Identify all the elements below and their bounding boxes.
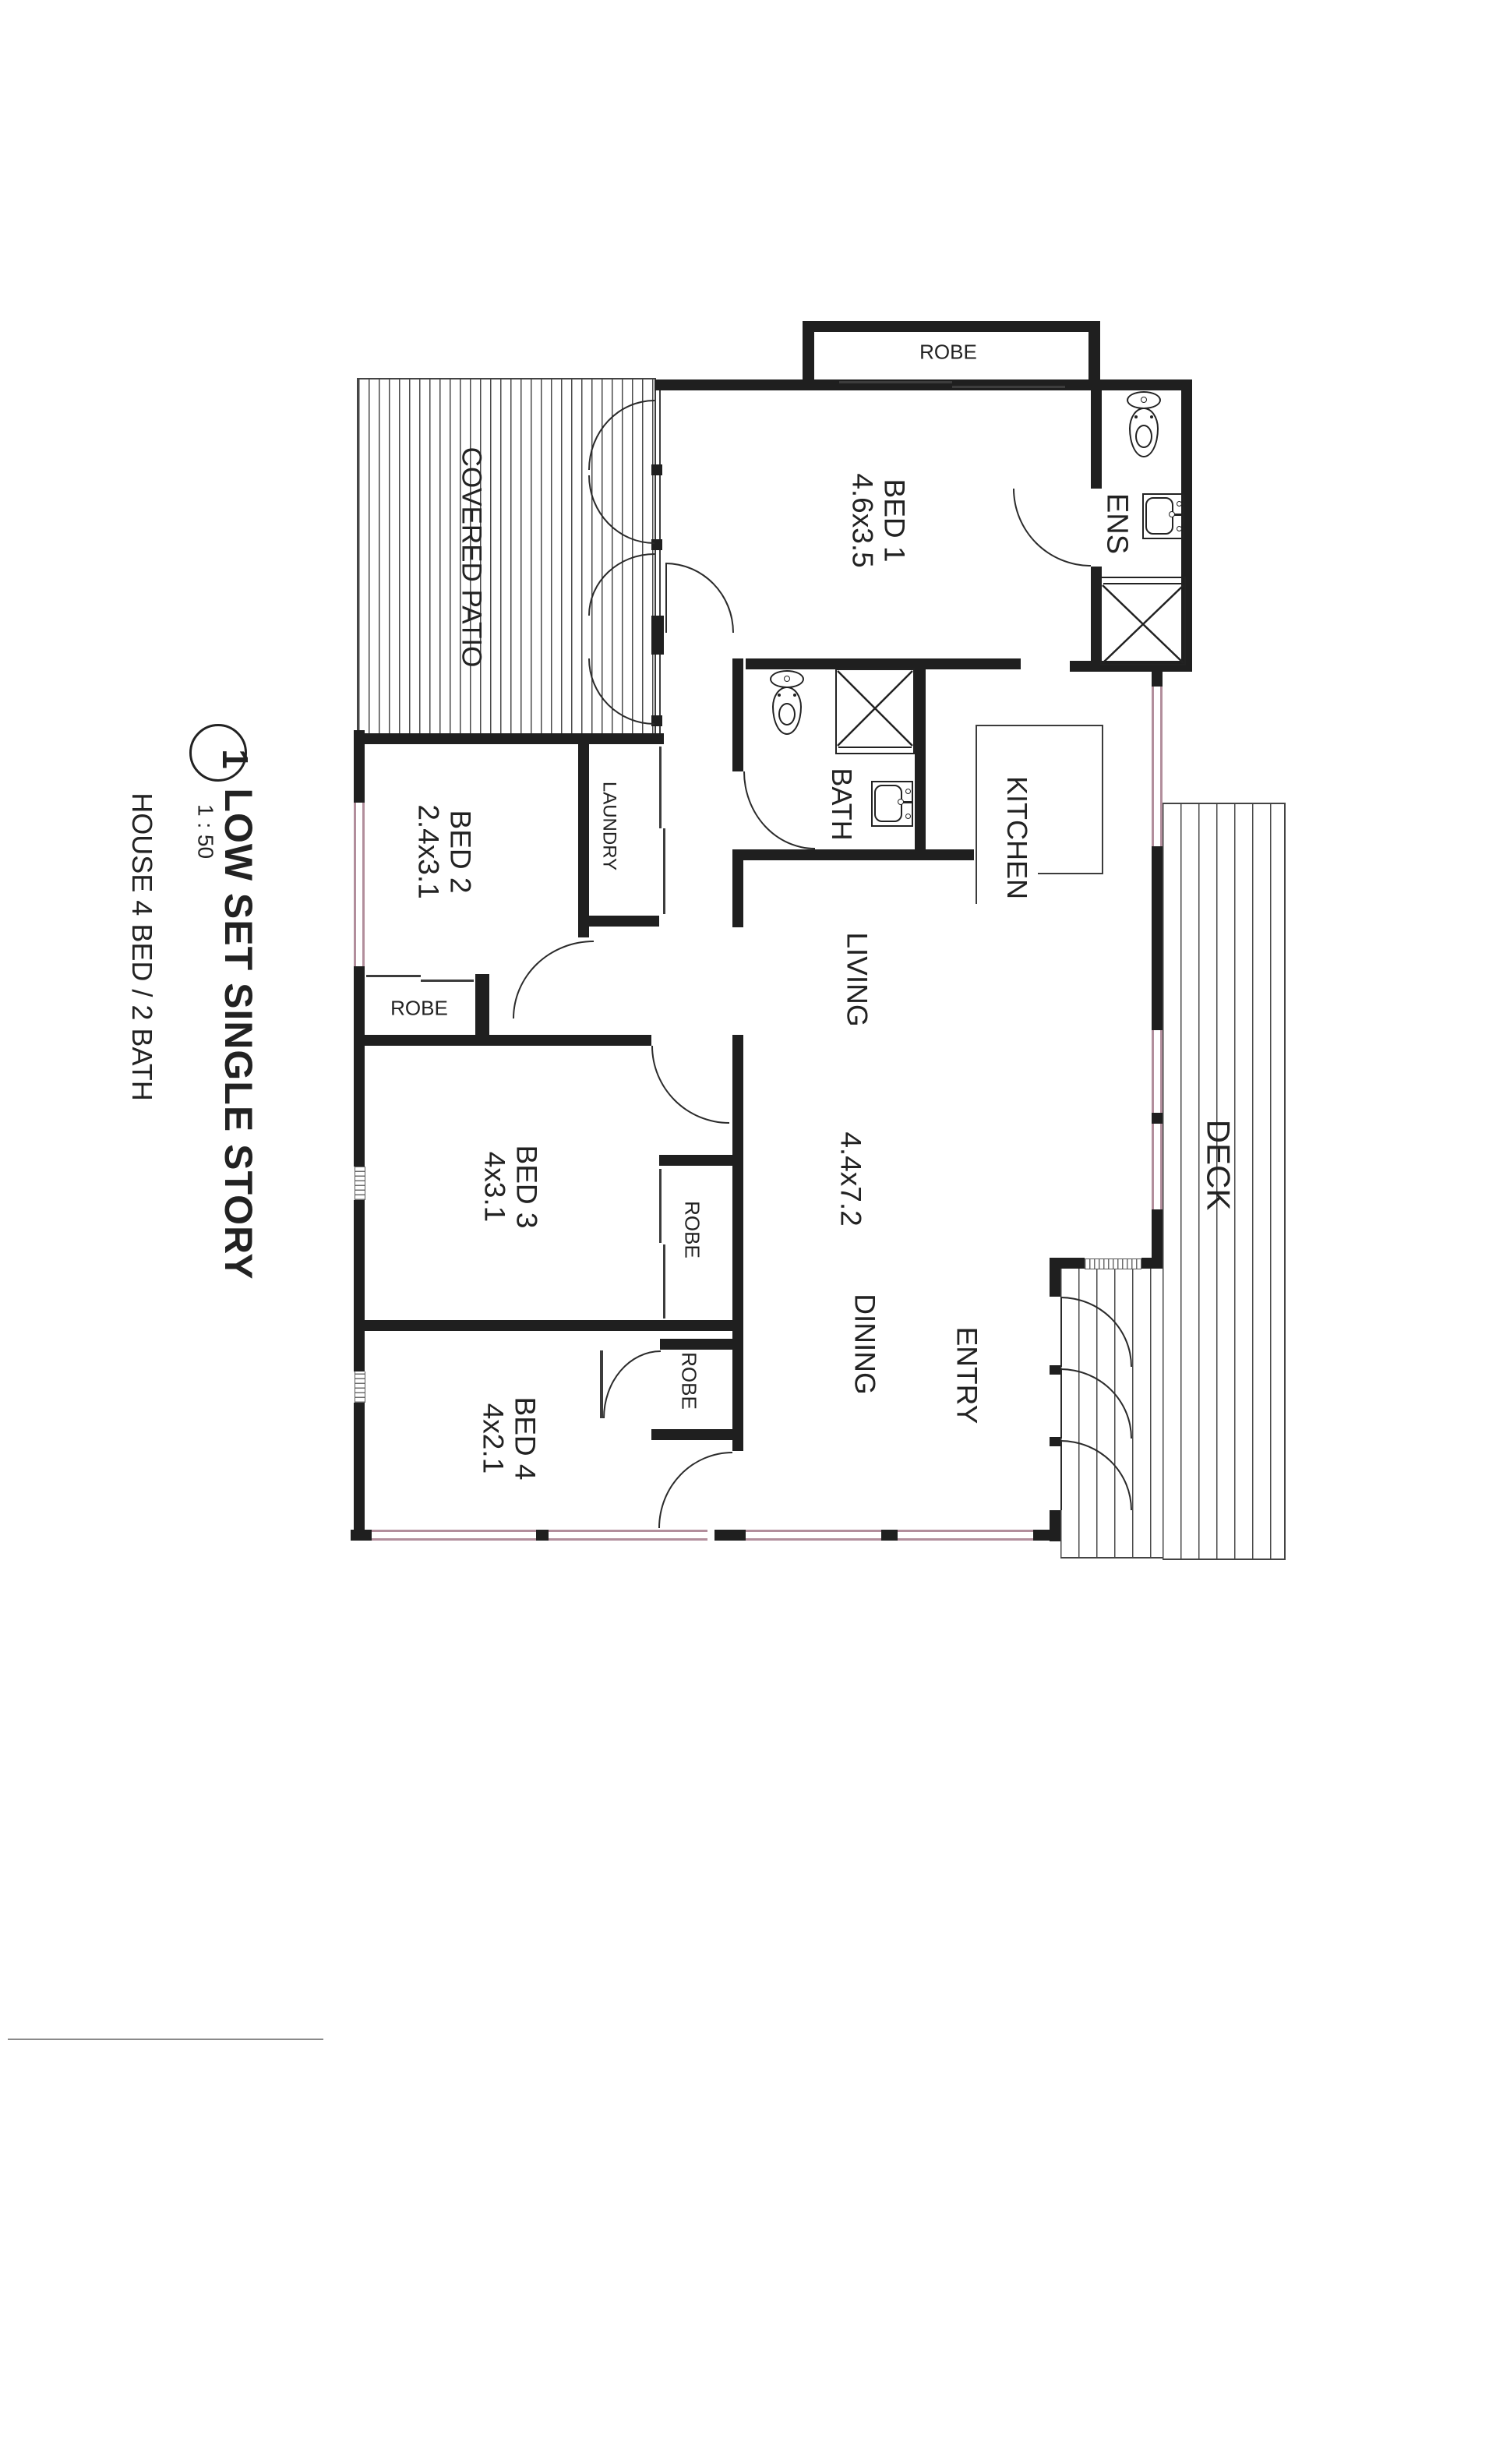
- window-living-east-mullion: [1152, 1113, 1163, 1124]
- kitchen-counter-right: [1102, 725, 1103, 874]
- wall-entry-east-a: [1050, 1258, 1060, 1297]
- wall-west-b: [354, 966, 365, 1167]
- window-bed3-west: [355, 1167, 365, 1200]
- label-deck: DECK: [1200, 1120, 1237, 1211]
- window-kitchen-east: [1152, 687, 1163, 846]
- wall-bed1-ens-upper: [1091, 379, 1102, 489]
- ens-toilet-icon: [1125, 390, 1163, 461]
- window-bottom-2: [549, 1530, 707, 1541]
- wall-bed2-east: [578, 740, 589, 937]
- bath-shower-icon: [835, 669, 915, 754]
- bath-toilet-icon: [768, 669, 806, 738]
- label-bath: BATH: [826, 768, 857, 840]
- wall-column-east: [732, 1035, 743, 1451]
- label-bed3: BED 3 4x3.1: [478, 1146, 543, 1229]
- floor-plan-page: 1 LOW SET SINGLE STORY 1 : 50 HOUSE 4 BE…: [0, 0, 1496, 2464]
- wall-robe3-top: [659, 1155, 743, 1166]
- hall-door: [665, 563, 734, 633]
- kitchen-counter-top: [976, 725, 1102, 726]
- wall-bed3-north: [354, 1035, 651, 1046]
- wall-bath-south: [732, 849, 974, 860]
- wall-bottom-mullion-1: [536, 1530, 549, 1541]
- window-bottom-3: [746, 1530, 881, 1541]
- wall-bed3-south: [354, 1320, 743, 1331]
- sheet-number-circle: 1: [189, 724, 247, 782]
- wall-bottom-corner-right: [1033, 1530, 1060, 1541]
- wall-laundry-south: [586, 916, 659, 927]
- label-entry: ENTRY: [951, 1327, 983, 1424]
- patio-wall-chunk: [651, 616, 664, 655]
- label-bed4: BED 4 4x2.1: [477, 1397, 542, 1481]
- bed4-door: [658, 1452, 732, 1528]
- label-living-dims: 4.4x7.2: [834, 1131, 866, 1226]
- robe2-slider-line-1: [366, 975, 421, 977]
- wall-bath-west-b: [732, 849, 743, 927]
- plan-subtitle: HOUSE 4 BED / 2 BATH: [126, 793, 157, 1100]
- kitchen-counter-bottom: [1038, 873, 1103, 874]
- wall-bath-east: [915, 669, 926, 849]
- label-living: LIVING: [841, 932, 873, 1026]
- bath-sink-icon: [871, 781, 915, 828]
- wall-east-b: [1152, 846, 1163, 1030]
- wall-bottom-mullion-2: [714, 1530, 746, 1541]
- wall-east-a: [1152, 672, 1163, 687]
- label-covered-patio: COVERED PATIO: [456, 447, 486, 668]
- wall-bottom-mullion-3: [881, 1530, 898, 1541]
- bed2-door: [513, 941, 594, 1018]
- ens-door: [1013, 489, 1091, 567]
- laundry-slider-line-2: [663, 828, 665, 914]
- label-robe-bed4: ROBE: [677, 1352, 700, 1410]
- label-robe-bed2: ROBE: [390, 997, 448, 1021]
- label-laundry: LAUNDRY: [598, 782, 619, 870]
- window-bed2-west: [354, 803, 365, 966]
- label-dining: DINING: [849, 1294, 880, 1395]
- robe1-slider-line-2: [952, 386, 1065, 388]
- window-bed4-west: [355, 1371, 365, 1403]
- label-robe-bed1: ROBE: [919, 341, 977, 365]
- wall-robe4-bottom: [651, 1429, 743, 1440]
- window-bottom-1: [372, 1530, 536, 1541]
- bath-door: [743, 771, 815, 849]
- laundry-slider-line-1: [659, 747, 662, 828]
- bed3-door: [651, 1046, 729, 1124]
- wall-west-c: [354, 1200, 365, 1371]
- wall-robe-bump-top: [803, 321, 1100, 332]
- wall-robe4-top: [660, 1339, 743, 1350]
- label-kitchen: KITCHEN: [1001, 776, 1032, 899]
- label-robe-bed3: ROBE: [680, 1201, 703, 1258]
- wall-west-d: [354, 1403, 365, 1541]
- robe4-door: [603, 1350, 661, 1418]
- wall-robe2-east: [475, 974, 489, 1041]
- robe3-slider-line-2: [663, 1244, 665, 1318]
- robe2-slider-line-2: [421, 980, 474, 982]
- label-bed2: BED 2 2.4x3.1: [412, 804, 477, 898]
- kitchen-counter-left: [976, 725, 977, 904]
- wall-patio-south: [354, 733, 664, 744]
- wall-entry-top-right: [1141, 1258, 1163, 1269]
- robe3-slider-line-1: [659, 1169, 662, 1243]
- wall-entry-hinge-2: [1050, 1437, 1060, 1446]
- patio-edge-line-1: [654, 390, 656, 733]
- plan-scale: 1 : 50: [193, 804, 217, 859]
- robe1-slider-line-1: [839, 381, 952, 383]
- wall-bath-north: [746, 658, 1021, 669]
- robe4-door-leaf: [600, 1350, 603, 1418]
- label-bed1: BED 1 4.6x3.5: [846, 473, 911, 567]
- plan-title: LOW SET SINGLE STORY: [217, 788, 260, 1280]
- ens-shower-icon: [1100, 577, 1186, 665]
- sheet-number: 1: [214, 749, 255, 769]
- window-bottom-4: [898, 1530, 1033, 1541]
- wall-bath-west-a: [732, 658, 743, 771]
- label-ens: ENS: [1100, 493, 1134, 554]
- wall-entry-hinge-1: [1050, 1365, 1060, 1375]
- patio-edge-line-2: [659, 390, 661, 733]
- ens-sink-icon: [1142, 493, 1186, 540]
- window-entry-top: [1085, 1258, 1141, 1269]
- wall-robe-bump-left: [803, 321, 814, 390]
- scan-divider-line: [8, 2039, 323, 2040]
